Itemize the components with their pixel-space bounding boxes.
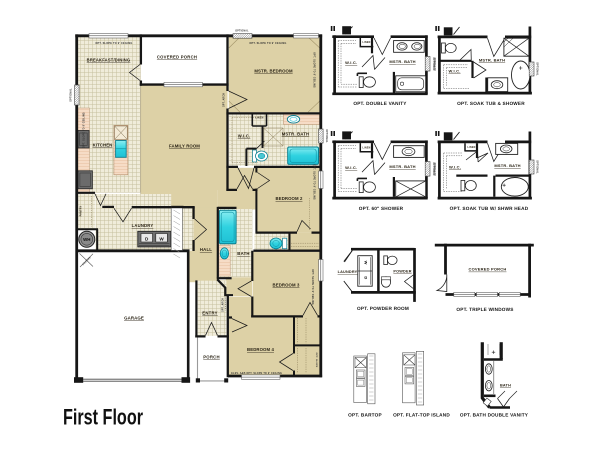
svg-text:OPT. SLOPE TO 9' CEILING: OPT. SLOPE TO 9' CEILING bbox=[83, 112, 86, 148]
svg-text:OPT. DOUBLE VANITY: OPT. DOUBLE VANITY bbox=[353, 101, 407, 106]
svg-text:First Floor: First Floor bbox=[63, 405, 143, 430]
svg-text:OPT. SLOPE TO 9' CEILING: OPT. SLOPE TO 9' CEILING bbox=[313, 52, 316, 88]
svg-text:HALL: HALL bbox=[200, 247, 212, 252]
svg-text:MSTR. BATH: MSTR. BATH bbox=[389, 164, 415, 169]
svg-text:OPTIONAL: OPTIONAL bbox=[434, 57, 437, 71]
svg-text:OPT. BATH DOUBLE VANITY: OPT. BATH DOUBLE VANITY bbox=[460, 412, 529, 417]
svg-text:W: W bbox=[159, 237, 164, 242]
svg-text:W.I.C.: W.I.C. bbox=[448, 69, 460, 74]
svg-text:MSTR. BATH: MSTR. BATH bbox=[479, 58, 505, 63]
svg-text:OPTIONAL: OPTIONAL bbox=[70, 88, 73, 102]
svg-text:OPT. TRIPLE WINDOWS: OPT. TRIPLE WINDOWS bbox=[456, 307, 513, 312]
svg-text:BATH: BATH bbox=[500, 384, 511, 388]
svg-text:OPT. SOAK TUB & SHOWER: OPT. SOAK TUB & SHOWER bbox=[457, 101, 525, 106]
svg-text:OPT. ARCH: OPT. ARCH bbox=[222, 93, 225, 107]
svg-text:OPT. SLOPE TO 9' CEILING: OPT. SLOPE TO 9' CEILING bbox=[95, 42, 132, 45]
svg-text:W.I.C.: W.I.C. bbox=[345, 165, 357, 170]
svg-text:OPTIONAL: OPTIONAL bbox=[434, 162, 437, 176]
svg-text:COVERED PORCH: COVERED PORCH bbox=[469, 267, 507, 272]
svg-text:OPT. POWDER ROOM: OPT. POWDER ROOM bbox=[357, 306, 409, 311]
svg-text:OPT. BARTOP: OPT. BARTOP bbox=[348, 412, 382, 417]
svg-text:LINEN: LINEN bbox=[363, 42, 371, 44]
svg-text:LINEN: LINEN bbox=[363, 147, 371, 149]
svg-text:PANTRY: PANTRY bbox=[80, 205, 83, 216]
svg-text:W.I.C.: W.I.C. bbox=[449, 165, 461, 170]
svg-text:LINEN: LINEN bbox=[468, 147, 476, 149]
svg-text:OPTIONAL: OPTIONAL bbox=[325, 129, 328, 143]
svg-text:GARAGE: GARAGE bbox=[124, 316, 144, 321]
svg-text:MSTR. BATH: MSTR. BATH bbox=[389, 59, 415, 64]
svg-text:KITCHEN: KITCHEN bbox=[93, 143, 113, 148]
svg-text:LAUNDRY: LAUNDRY bbox=[132, 223, 154, 228]
svg-text:D: D bbox=[364, 276, 369, 279]
svg-text:PORCH: PORCH bbox=[203, 355, 220, 360]
svg-text:LAUNDRY: LAUNDRY bbox=[338, 270, 358, 274]
svg-text:MSTR. BATH: MSTR. BATH bbox=[494, 163, 520, 168]
svg-text:W.I.C.: W.I.C. bbox=[345, 60, 357, 65]
svg-text:BREAKFAST/DINING: BREAKFAST/DINING bbox=[87, 58, 131, 63]
svg-text:OPTIONAL: OPTIONAL bbox=[235, 29, 249, 32]
svg-text:BEDROOM 4: BEDROOM 4 bbox=[247, 347, 274, 352]
svg-text:BEDROOM 3: BEDROOM 3 bbox=[273, 283, 300, 288]
svg-text:ENTRY: ENTRY bbox=[202, 311, 217, 316]
svg-text:ELEV. A&B OPT. SLOPE TO 9' CEI: ELEV. A&B OPT. SLOPE TO 9' CEILING bbox=[231, 372, 282, 375]
svg-text:W: W bbox=[364, 261, 369, 265]
svg-text:OPT. SLOPE TO 9' CEILING: OPT. SLOPE TO 9' CEILING bbox=[249, 42, 286, 45]
svg-text:W.I.C.: W.I.C. bbox=[238, 134, 251, 139]
svg-text:OPT. SLOPE TO 9' CEILING: OPT. SLOPE TO 9' CEILING bbox=[311, 269, 314, 305]
svg-text:FAMILY ROOM: FAMILY ROOM bbox=[169, 144, 200, 149]
svg-text:OPT. SLOPE TO 9' CEILING: OPT. SLOPE TO 9' CEILING bbox=[313, 164, 316, 200]
svg-text:OPTIONAL: OPTIONAL bbox=[536, 62, 539, 76]
svg-text:BEDROOM 2: BEDROOM 2 bbox=[276, 196, 303, 201]
svg-text:OPTIONAL: OPTIONAL bbox=[536, 160, 539, 174]
svg-text:LINEN: LINEN bbox=[255, 117, 263, 120]
svg-text:OPT. FLAT-TOP ISLAND: OPT. FLAT-TOP ISLAND bbox=[393, 412, 450, 417]
svg-text:OPT. 60" SHOWER: OPT. 60" SHOWER bbox=[359, 206, 404, 211]
svg-text:OPT. ARCH: OPT. ARCH bbox=[222, 298, 225, 312]
svg-text:WH: WH bbox=[83, 237, 90, 242]
svg-text:OPT. SOAK TUB W/ SHWR HEAD: OPT. SOAK TUB W/ SHWR HEAD bbox=[450, 206, 529, 211]
svg-text:POWDER: POWDER bbox=[393, 269, 411, 273]
svg-text:OPT. SLOPE: OPT. SLOPE bbox=[315, 353, 317, 368]
svg-text:BATH: BATH bbox=[237, 251, 249, 256]
svg-text:MSTR. BATH: MSTR. BATH bbox=[282, 132, 310, 137]
svg-text:MSTR. BEDROOM: MSTR. BEDROOM bbox=[254, 69, 293, 74]
svg-text:COVERED PORCH: COVERED PORCH bbox=[157, 55, 197, 60]
